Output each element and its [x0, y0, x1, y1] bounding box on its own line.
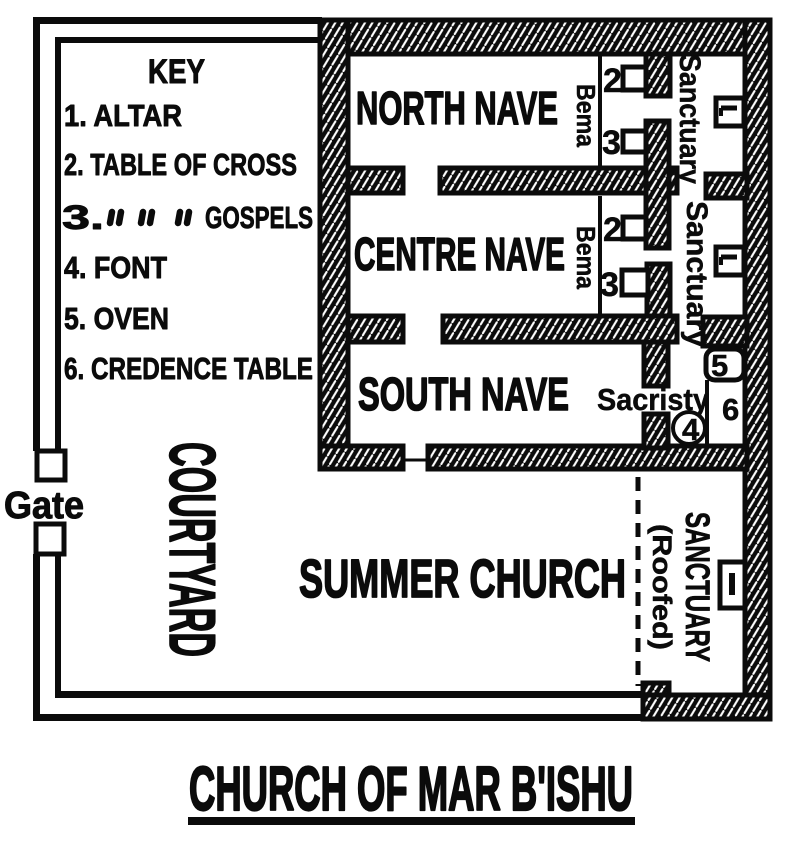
svg-text:CENTRE NAVE: CENTRE NAVE: [354, 228, 565, 280]
svg-text:SUMMER CHURCH: SUMMER CHURCH: [299, 549, 626, 609]
svg-text:6. CREDENCE TABLE: 6. CREDENCE TABLE: [64, 351, 313, 386]
svg-text:1. ALTAR: 1. ALTAR: [64, 98, 182, 133]
svg-text:CHURCH OF MAR B'ISHU: CHURCH OF MAR B'ISHU: [189, 755, 633, 824]
svg-text:5: 5: [711, 348, 728, 383]
svg-text:2: 2: [603, 62, 622, 100]
svg-text:4: 4: [682, 412, 700, 447]
svg-text:Bema: Bema: [571, 84, 601, 147]
svg-text:Sanctuary: Sanctuary: [673, 54, 706, 184]
svg-text:NORTH NAVE: NORTH NAVE: [356, 82, 558, 134]
svg-text:(Roofed): (Roofed): [647, 524, 677, 650]
svg-text:3: 3: [600, 266, 619, 304]
svg-text:4. FONT: 4. FONT: [64, 250, 167, 285]
svg-text:GOSPELS: GOSPELS: [205, 200, 313, 235]
svg-text:3.: 3.: [62, 199, 104, 237]
svg-text:COURTYARD: COURTYARD: [156, 442, 229, 657]
svg-text:Bema: Bema: [571, 226, 601, 289]
svg-text:KEY: KEY: [148, 53, 205, 91]
svg-text:6: 6: [722, 392, 739, 427]
svg-text:2. TABLE OF CROSS: 2. TABLE OF CROSS: [64, 147, 297, 182]
svg-text:SOUTH NAVE: SOUTH NAVE: [358, 368, 569, 420]
svg-text:Gate: Gate: [4, 485, 84, 527]
svg-text:SANCTUARY: SANCTUARY: [678, 512, 716, 662]
svg-text:3: 3: [602, 124, 621, 162]
svg-text:2: 2: [603, 211, 622, 249]
svg-text:5. OVEN: 5. OVEN: [64, 301, 169, 336]
